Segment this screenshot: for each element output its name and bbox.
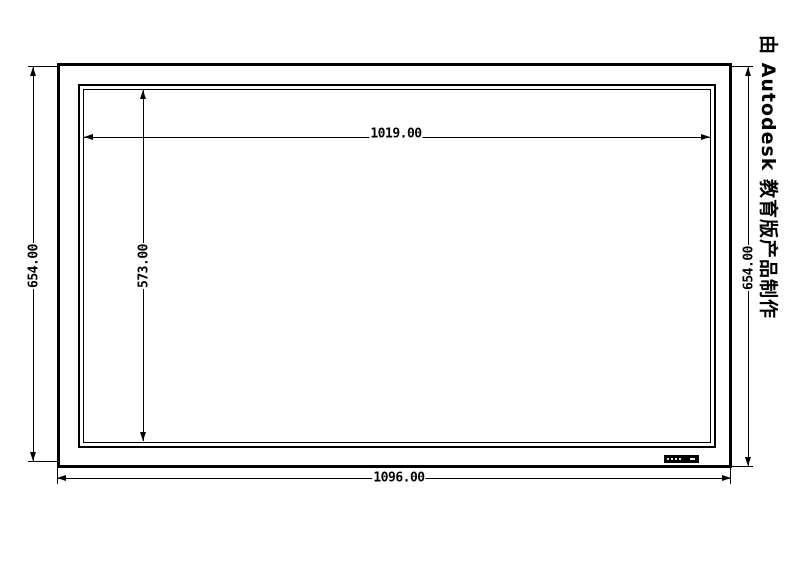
button-dash-icon (690, 458, 695, 460)
button-dot-icon (671, 458, 673, 460)
arrowhead-up-icon (140, 90, 146, 99)
control-buttons-strip (664, 455, 699, 463)
button-dot-icon (675, 458, 677, 460)
arrowhead-down-icon (140, 432, 146, 441)
autodesk-educational-watermark: 由 Autodesk 教育版产品制作 (756, 35, 783, 319)
dim-label-inner-height: 573.00 (137, 243, 152, 289)
cad-drawing-canvas: 1019.00 573.00 654.00 654.00 1096.00 由 A… (0, 0, 793, 567)
arrowhead-right-icon (701, 134, 710, 140)
screen-area-outline (83, 89, 711, 443)
arrowhead-right-icon (722, 475, 731, 481)
button-dot-icon (679, 458, 681, 460)
button-dot-icon (667, 458, 669, 460)
arrowhead-down-icon (745, 457, 751, 466)
dim-label-outer-width: 1096.00 (372, 471, 425, 486)
arrowhead-up-icon (745, 67, 751, 76)
arrowhead-up-icon (30, 67, 36, 76)
arrowhead-left-icon (84, 134, 93, 140)
ext-line-right-bottom (731, 466, 753, 467)
dim-label-inner-width: 1019.00 (369, 127, 422, 142)
arrowhead-down-icon (30, 452, 36, 461)
arrowhead-left-icon (57, 475, 66, 481)
dim-label-outer-height-left: 654.00 (27, 243, 42, 289)
dim-label-outer-height-right: 654.00 (742, 245, 757, 291)
